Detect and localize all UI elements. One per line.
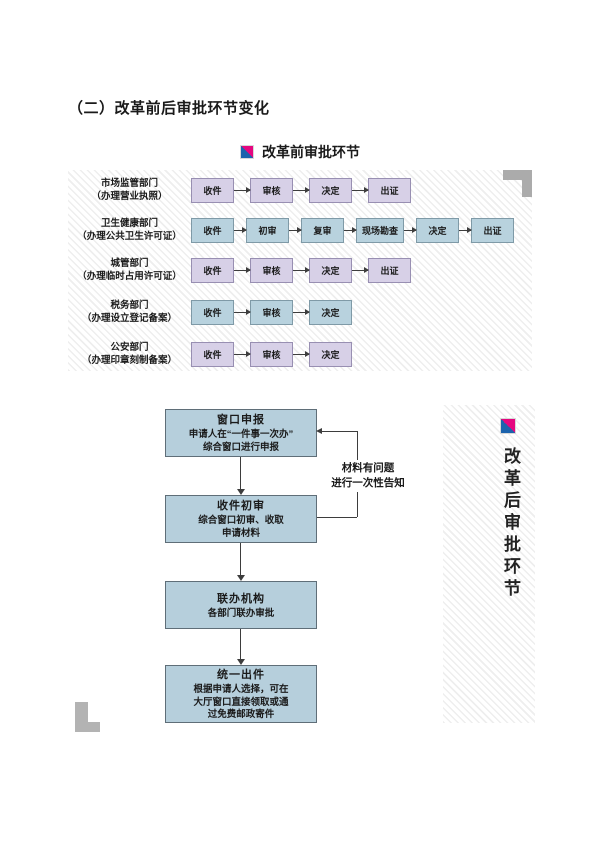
department-label: 税务部门 （办理设立登记备案） [68, 300, 191, 325]
arrow-down-icon [240, 457, 241, 490]
arrow-down-icon [240, 543, 241, 576]
process-row-tax: 税务部门 （办理设立登记备案） 收件 审核 决定 [68, 300, 532, 325]
flow-box-desc-line: 各部门联办审批 [208, 608, 275, 621]
arrow-right-icon [234, 312, 250, 313]
arrow-right-icon [352, 190, 368, 191]
step-box: 审核 [250, 342, 293, 367]
flow-box-desc-line: 综合窗口进行申报 [203, 442, 279, 455]
feedback-label-line: 进行一次性告知 [323, 476, 413, 491]
flow-box-desc-line: 综合窗口初审、收取 [198, 515, 284, 528]
feedback-line-bottom [317, 517, 357, 518]
arrow-right-icon [234, 354, 250, 355]
flow-box-desc-line: 过免费邮政寄件 [208, 709, 275, 722]
process-flow: 收件 审核 决定 出证 [191, 258, 411, 283]
department-note: （办理公共卫生许可证） [68, 231, 191, 243]
corner-bracket-bottom-left [75, 702, 100, 732]
step-box: 决定 [309, 178, 352, 203]
department-name: 卫生健康部门 [68, 218, 191, 230]
department-note: （办理设立登记备案） [68, 313, 191, 325]
arrow-right-icon [293, 354, 309, 355]
flow-box-title: 收件初审 [217, 497, 265, 513]
diagonal-square-icon [240, 145, 254, 159]
department-note: （办理营业执照） [68, 191, 191, 203]
step-box: 收件 [191, 218, 234, 243]
department-label: 城管部门 （办理临时占用许可证） [68, 258, 191, 283]
arrow-right-icon [459, 230, 471, 231]
department-note: （办理临时占用许可证） [68, 271, 191, 283]
flow-box-desc-line: 申请人在“一件事一次办” [189, 429, 294, 442]
flow-box-title: 联办机构 [217, 590, 265, 606]
arrow-right-icon [293, 190, 309, 191]
process-flow: 收件 初审 复审 现场勘查 决定 出证 [191, 218, 514, 243]
feedback-label: 材料有问题 进行一次性告知 [323, 460, 413, 492]
arrow-right-icon [234, 230, 246, 231]
feedback-label-line: 材料有问题 [323, 461, 413, 476]
department-label: 公安部门 （办理印章刻制备案） [68, 342, 191, 367]
step-box: 收件 [191, 258, 234, 283]
arrow-right-icon [352, 270, 368, 271]
diagonal-square-icon [500, 418, 516, 434]
arrow-right-icon [293, 312, 309, 313]
process-row-public-security: 公安部门 （办理印章刻制备案） 收件 审核 决定 [68, 342, 532, 367]
flow-box-intake-review: 收件初审 综合窗口初审、收取 申请材料 [165, 495, 317, 543]
step-box: 复审 [301, 218, 344, 243]
department-name: 城管部门 [68, 258, 191, 270]
step-box: 收件 [191, 178, 234, 203]
arrow-right-icon [293, 270, 309, 271]
step-box: 初审 [246, 218, 289, 243]
flow-box-desc-line: 申请材料 [222, 528, 260, 541]
step-box: 出证 [368, 258, 411, 283]
after-reform-heading-label: 改革后审批环节 [498, 447, 523, 601]
step-box: 出证 [368, 178, 411, 203]
flow-box-title: 统一出件 [217, 666, 265, 682]
before-reform-heading: 改革前审批环节 [68, 142, 532, 162]
before-reform-panel: 市场监管部门 （办理营业执照） 收件 审核 决定 出证 卫生健康部门 （办理公共… [68, 170, 532, 371]
department-note: （办理印章刻制备案） [68, 355, 191, 367]
step-box: 收件 [191, 342, 234, 367]
process-row-urban-management: 城管部门 （办理临时占用许可证） 收件 审核 决定 出证 [68, 258, 532, 283]
department-label: 卫生健康部门 （办理公共卫生许可证） [68, 218, 191, 243]
step-box: 决定 [309, 258, 352, 283]
flow-box-desc-line: 根据申请人选择，可在 [193, 684, 288, 697]
department-name: 税务部门 [68, 300, 191, 312]
process-flow: 收件 审核 决定 [191, 300, 352, 325]
step-box: 决定 [416, 218, 459, 243]
flow-box-title: 窗口申报 [217, 411, 265, 427]
department-label: 市场监管部门 （办理营业执照） [68, 178, 191, 203]
arrow-right-icon [234, 270, 250, 271]
step-box: 审核 [250, 258, 293, 283]
process-flow: 收件 审核 决定 [191, 342, 352, 367]
step-box: 出证 [471, 218, 514, 243]
process-flow: 收件 审核 决定 出证 [191, 178, 411, 203]
step-box: 收件 [191, 300, 234, 325]
process-row-market-supervision: 市场监管部门 （办理营业执照） 收件 审核 决定 出证 [68, 178, 532, 203]
flow-box-window-declaration: 窗口申报 申请人在“一件事一次办” 综合窗口进行申报 [165, 409, 317, 457]
arrow-right-icon [289, 230, 301, 231]
step-box: 审核 [250, 178, 293, 203]
step-box: 现场勘查 [356, 218, 404, 243]
process-row-health: 卫生健康部门 （办理公共卫生许可证） 收件 初审 复审 现场勘查 决定 出证 [68, 218, 532, 243]
page-title: （二）改革前后审批环节变化 [68, 97, 270, 118]
feedback-line-top [321, 431, 357, 432]
department-name: 公安部门 [68, 342, 191, 354]
step-box: 决定 [309, 300, 352, 325]
arrow-left-icon [316, 428, 322, 434]
document-page: （二）改革前后审批环节变化 改革前审批环节 市场监管部门 （办理营业执照） 收件… [0, 0, 600, 849]
before-reform-heading-label: 改革前审批环节 [262, 142, 360, 162]
arrow-right-icon [344, 230, 356, 231]
after-reform-panel: 改革后审批环节 [443, 405, 535, 723]
flow-box-joint-agency: 联办机构 各部门联办审批 [165, 581, 317, 629]
step-box: 决定 [309, 342, 352, 367]
arrow-right-icon [404, 230, 416, 231]
flow-box-unified-issuance: 统一出件 根据申请人选择，可在 大厅窗口直接领取或通 过免费邮政寄件 [165, 665, 317, 723]
arrow-down-icon [240, 629, 241, 660]
arrow-right-icon [234, 190, 250, 191]
step-box: 审核 [250, 300, 293, 325]
department-name: 市场监管部门 [68, 178, 191, 190]
flow-box-desc-line: 大厅窗口直接领取或通 [193, 697, 288, 710]
